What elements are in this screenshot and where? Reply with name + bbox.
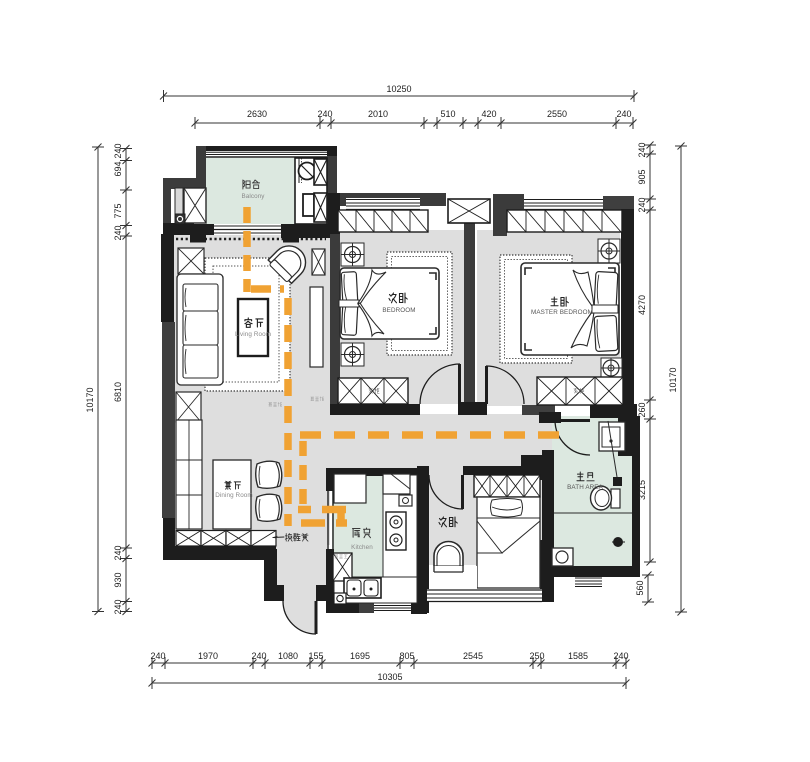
svg-text:560: 560	[635, 580, 645, 595]
svg-text:250: 250	[529, 651, 544, 661]
svg-text:1970: 1970	[198, 651, 218, 661]
svg-text:2630: 2630	[247, 109, 267, 119]
svg-text:775: 775	[113, 203, 123, 218]
svg-text:1695: 1695	[350, 651, 370, 661]
svg-text:1080: 1080	[278, 651, 298, 661]
svg-text:10170: 10170	[85, 387, 95, 412]
svg-text:MASTER BEDROOM: MASTER BEDROOM	[531, 309, 593, 316]
svg-text:240: 240	[613, 651, 628, 661]
svg-text:240: 240	[113, 545, 123, 560]
svg-text:240: 240	[616, 109, 631, 119]
svg-text:694: 694	[113, 161, 123, 176]
svg-text:805: 805	[399, 651, 414, 661]
svg-text:510: 510	[440, 109, 455, 119]
svg-text:240: 240	[113, 143, 123, 158]
svg-text:930: 930	[113, 572, 123, 587]
svg-text:6810: 6810	[113, 382, 123, 402]
svg-text:240: 240	[150, 651, 165, 661]
svg-text:240: 240	[251, 651, 266, 661]
svg-text:240: 240	[637, 197, 647, 212]
svg-text:155: 155	[308, 651, 323, 661]
svg-text:BATH AREA: BATH AREA	[567, 484, 603, 491]
svg-text:240: 240	[113, 225, 123, 240]
svg-text:Dining Room: Dining Room	[215, 492, 253, 499]
svg-text:905: 905	[637, 169, 647, 184]
svg-text:1585: 1585	[568, 651, 588, 661]
svg-text:240: 240	[113, 599, 123, 614]
svg-text:3215: 3215	[637, 480, 647, 500]
svg-text:240: 240	[317, 109, 332, 119]
svg-text:4270: 4270	[637, 295, 647, 315]
svg-text:10170: 10170	[668, 367, 678, 392]
svg-text:2010: 2010	[368, 109, 388, 119]
svg-text:2545: 2545	[463, 651, 483, 661]
svg-text:2550: 2550	[547, 109, 567, 119]
svg-text:260: 260	[637, 402, 647, 417]
svg-text:Living Room: Living Room	[235, 331, 271, 338]
svg-text:10305: 10305	[377, 672, 402, 682]
svg-text:Balcony: Balcony	[241, 193, 265, 200]
svg-text:10250: 10250	[386, 84, 411, 94]
svg-text:BEDROOM: BEDROOM	[382, 307, 415, 314]
svg-text:Kitchen: Kitchen	[351, 544, 373, 551]
svg-text:420: 420	[481, 109, 496, 119]
svg-text:240: 240	[637, 142, 647, 157]
